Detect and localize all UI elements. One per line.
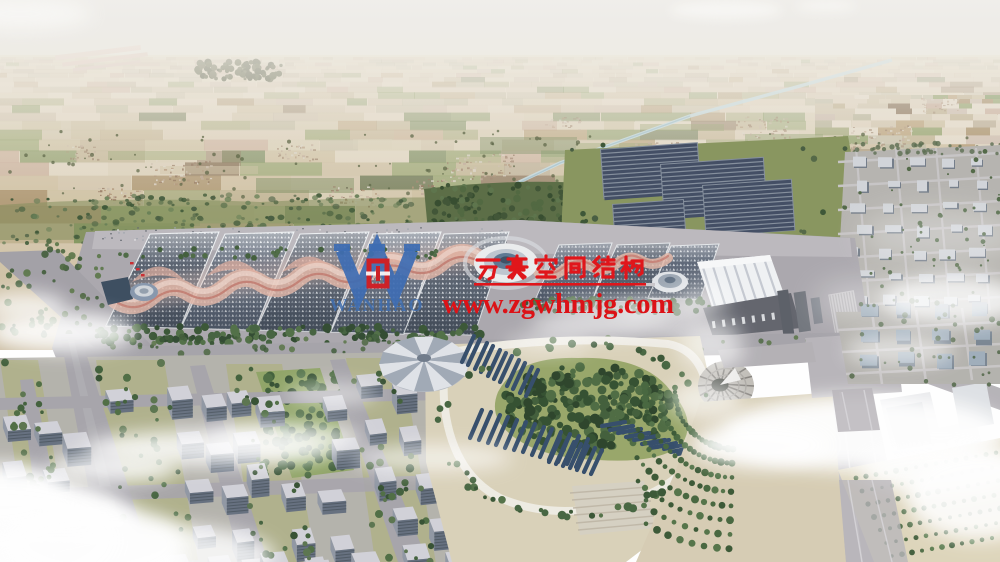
svg-text:www.zgwhmjg.com: www.zgwhmjg.com bbox=[442, 289, 674, 320]
svg-text:WANHAO: WANHAO bbox=[329, 295, 424, 315]
